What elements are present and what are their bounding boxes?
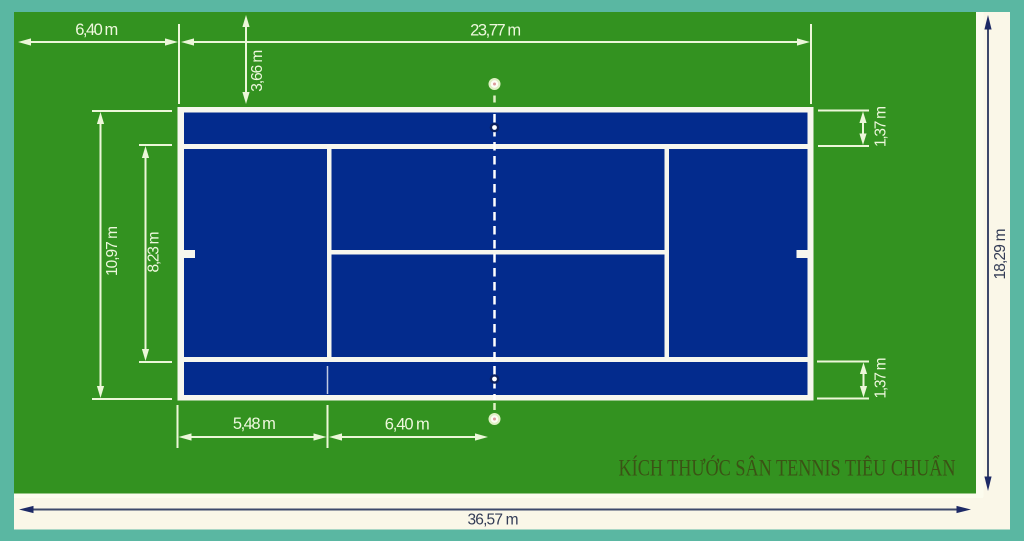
svg-text:6,40 m: 6,40 m: [75, 21, 118, 39]
svg-text:6,40 m: 6,40 m: [385, 416, 430, 434]
svg-text:KÍCH THƯỚC SÂN TENNIS TIÊU CHU: KÍCH THƯỚC SÂN TENNIS TIÊU CHUẨN: [619, 455, 956, 482]
svg-text:5,48 m: 5,48 m: [233, 415, 276, 433]
svg-text:8,23 m: 8,23 m: [146, 232, 163, 273]
svg-text:18,29 m: 18,29 m: [992, 229, 1009, 280]
svg-text:3,66 m: 3,66 m: [249, 50, 266, 92]
svg-text:1,37 m: 1,37 m: [873, 358, 890, 399]
svg-text:10,97 m: 10,97 m: [104, 226, 121, 276]
svg-text:23,77 m: 23,77 m: [470, 21, 521, 39]
svg-text:36,57 m: 36,57 m: [468, 512, 519, 529]
svg-text:1,37 m: 1,37 m: [873, 106, 890, 147]
